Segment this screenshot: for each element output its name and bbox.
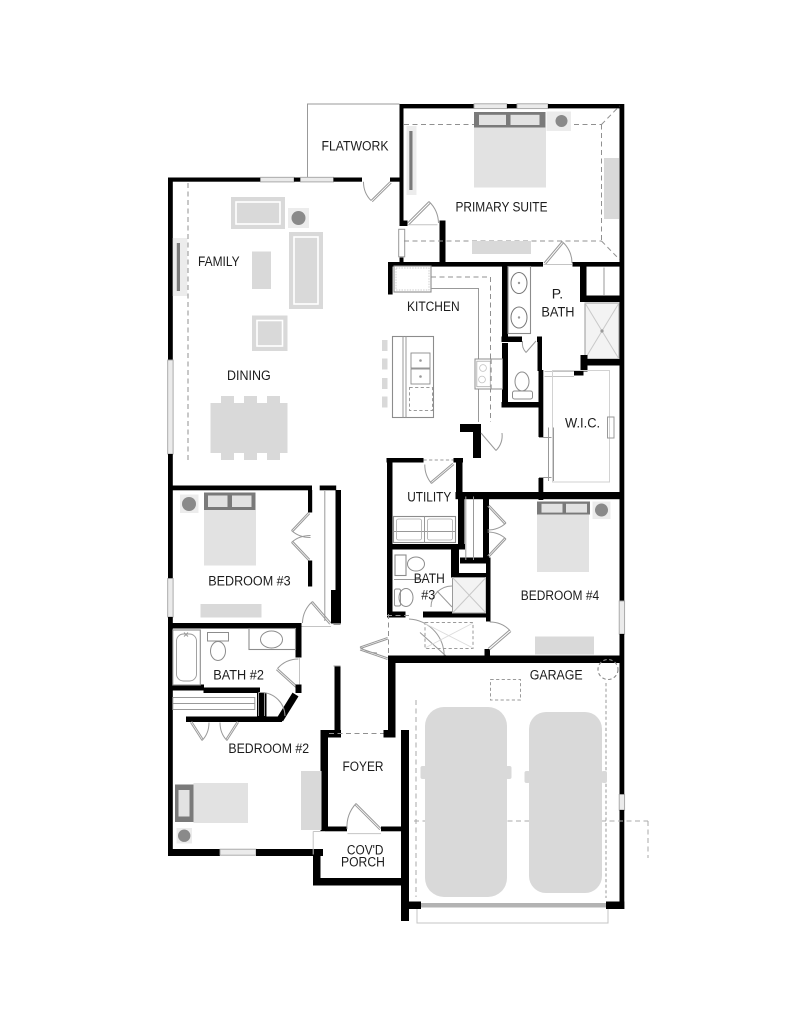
svg-text:PORCH: PORCH [341,855,385,871]
svg-text:FLATWORK: FLATWORK [322,139,389,155]
svg-text:KITCHEN: KITCHEN [407,299,460,315]
svg-text:PRIMARY SUITE: PRIMARY SUITE [456,200,548,216]
svg-text:P.: P. [552,286,563,302]
svg-text:W.I.C.: W.I.C. [565,416,600,432]
svg-text:#3: #3 [421,588,435,604]
svg-text:GARAGE: GARAGE [530,668,583,684]
svg-text:BATH: BATH [541,304,574,320]
svg-text:BEDROOM #4: BEDROOM #4 [521,588,599,604]
svg-text:FOYER: FOYER [343,759,384,775]
svg-text:BEDROOM #2: BEDROOM #2 [228,741,309,757]
svg-text:DINING: DINING [227,368,271,384]
svg-text:BEDROOM #3: BEDROOM #3 [208,573,290,589]
svg-text:FAMILY: FAMILY [198,254,240,270]
svg-text:UTILITY: UTILITY [407,490,452,506]
svg-text:BATH: BATH [414,571,445,587]
svg-text:BATH #2: BATH #2 [213,667,264,683]
